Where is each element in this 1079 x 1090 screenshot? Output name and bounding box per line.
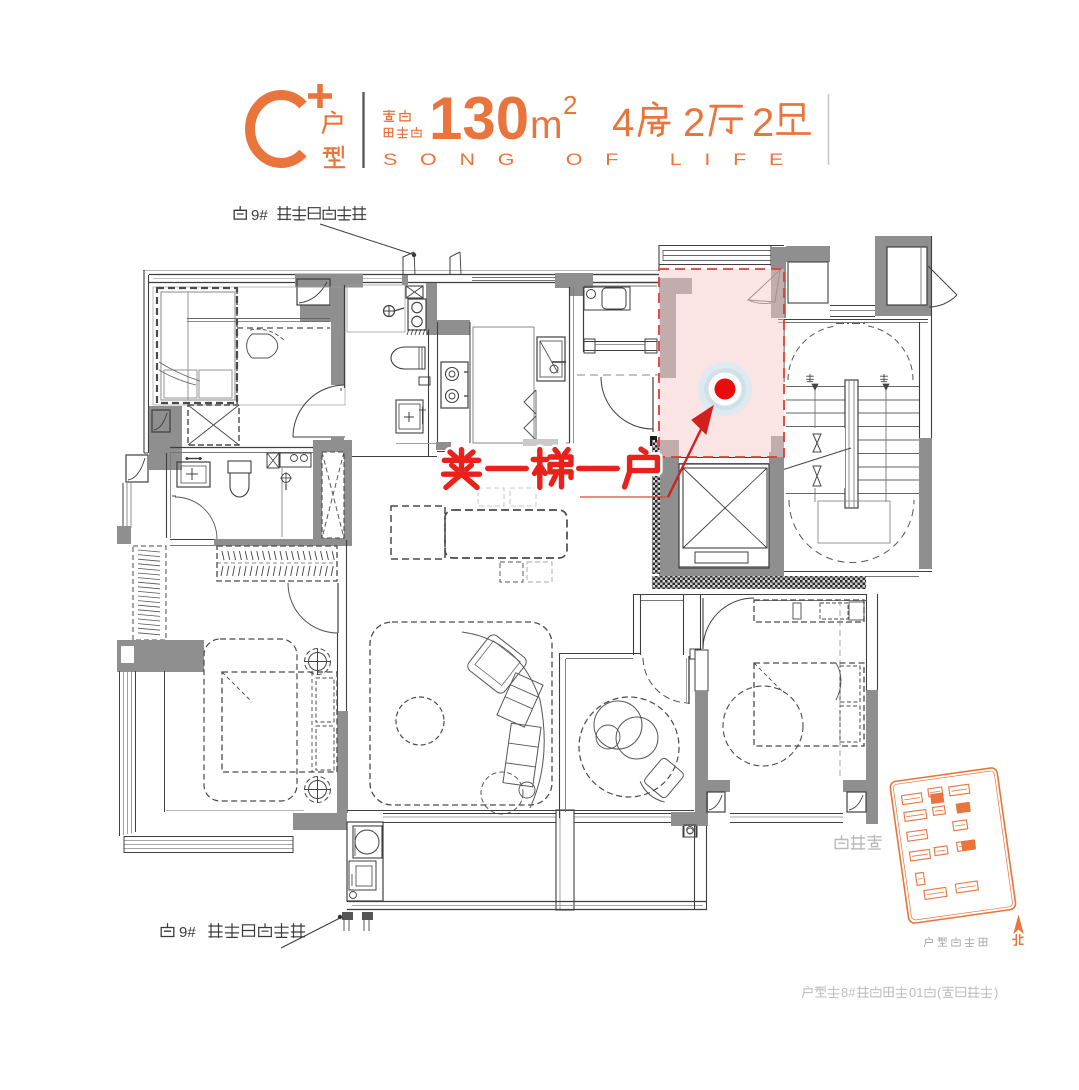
svg-text:9#: 9# — [251, 207, 268, 224]
svg-text:8#: 8# — [841, 985, 856, 1000]
svg-text:(: ( — [937, 985, 942, 1000]
svg-text:2: 2 — [563, 90, 577, 120]
svg-text:9#: 9# — [179, 924, 196, 941]
svg-text:01: 01 — [909, 985, 923, 1000]
svg-text:4: 4 — [612, 101, 634, 145]
svg-text:m: m — [530, 104, 563, 147]
svg-text:2: 2 — [683, 101, 705, 145]
svg-text:2: 2 — [752, 101, 774, 145]
svg-text:130: 130 — [429, 85, 529, 152]
svg-text:SONG OF LIFE: SONG OF LIFE — [383, 150, 806, 169]
svg-text:): ) — [994, 985, 998, 1000]
